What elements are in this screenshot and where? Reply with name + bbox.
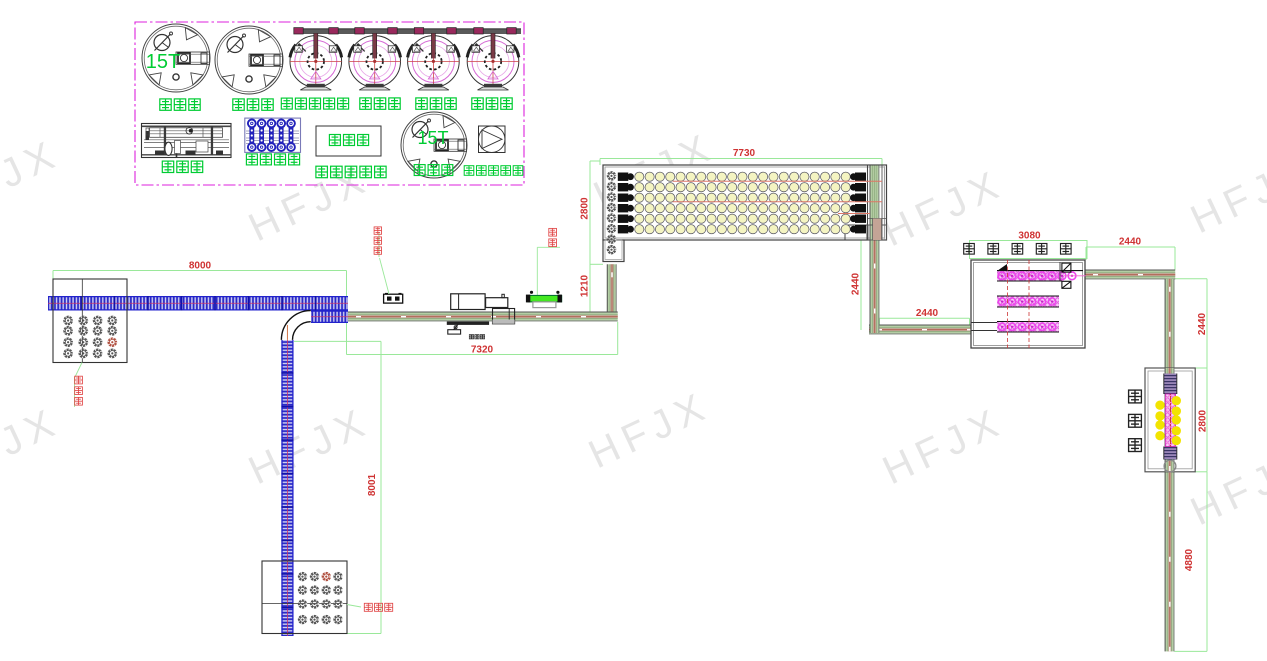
svg-text:8001: 8001: [367, 473, 378, 496]
svg-text:HFJX: HFJX: [876, 161, 1011, 255]
svg-text:1210: 1210: [580, 274, 591, 297]
svg-text:HFJX: HFJX: [0, 131, 67, 225]
svg-text:HFJX: HFJX: [0, 399, 67, 493]
svg-text:15T: 15T: [146, 51, 180, 73]
svg-text:8000: 8000: [189, 261, 212, 272]
svg-text:2800: 2800: [580, 197, 591, 220]
svg-text:HFJX: HFJX: [1184, 148, 1267, 242]
svg-text:2440: 2440: [1119, 237, 1142, 248]
svg-text:HFJX: HFJX: [582, 383, 717, 477]
svg-text:2440: 2440: [916, 308, 939, 319]
svg-text:HFJX: HFJX: [1184, 440, 1267, 534]
svg-text:2440: 2440: [851, 272, 862, 295]
svg-text:HFJX: HFJX: [876, 399, 1011, 493]
svg-text:2800: 2800: [1198, 409, 1209, 432]
svg-text:15T: 15T: [417, 128, 448, 148]
svg-text:4880: 4880: [1184, 548, 1195, 571]
svg-text:HFJX: HFJX: [242, 399, 377, 493]
svg-text:7730: 7730: [733, 148, 756, 159]
svg-text:3080: 3080: [1018, 231, 1041, 242]
svg-text:7320: 7320: [471, 345, 494, 356]
svg-text:2440: 2440: [1197, 312, 1208, 335]
